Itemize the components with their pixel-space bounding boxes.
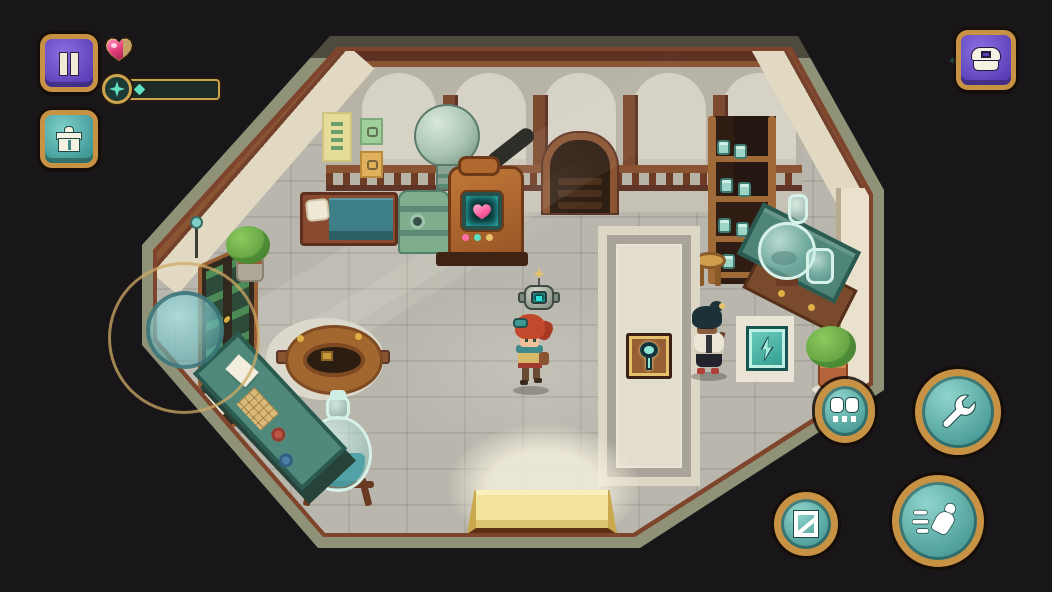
chest-button[interactable] — [956, 30, 1016, 90]
goggle-eyes-icon — [830, 398, 860, 424]
wall-beam — [326, 51, 802, 67]
energy-star-cap — [102, 74, 132, 104]
machine-heart-screen — [462, 192, 502, 230]
patch-crafting-machine — [396, 104, 528, 266]
joystick-knob[interactable] — [146, 291, 224, 369]
lamp-post — [195, 228, 198, 258]
runner-icon — [912, 501, 964, 541]
wrench-icon — [937, 391, 979, 433]
pause-icon — [59, 52, 79, 74]
pause-button[interactable] — [40, 34, 98, 92]
shopkeeper-npc — [686, 304, 732, 380]
energy-pip — [134, 84, 145, 95]
map-button[interactable] — [774, 492, 838, 556]
dash-button[interactable] — [892, 475, 984, 567]
wrench-button[interactable] — [915, 369, 1001, 455]
desk-grid-paper — [236, 387, 279, 430]
wall-poster-orange — [360, 151, 383, 178]
player-hero — [510, 314, 554, 394]
bed — [300, 192, 398, 246]
glass-jar — [806, 248, 834, 284]
four-point-star-icon — [109, 81, 125, 97]
gift-icon — [57, 127, 81, 151]
entrance-mat — [467, 490, 617, 534]
map-icon — [794, 511, 818, 537]
currency-counter: 305 — [956, 30, 1016, 90]
wall-poster-large — [322, 112, 352, 162]
red-mug — [268, 425, 288, 445]
health-hearts — [104, 36, 304, 66]
companion-button[interactable] — [815, 379, 875, 443]
heart-partial — [104, 36, 134, 64]
chest-icon — [972, 48, 1000, 72]
lamp-globe — [190, 216, 203, 229]
robot-companion — [518, 268, 562, 320]
bolt-patch-display — [746, 326, 788, 371]
key-patch-icon — [639, 342, 659, 370]
key-patch-plaque — [626, 333, 672, 379]
game-screen: 305 — [0, 0, 1052, 592]
inventory-button[interactable] — [40, 110, 98, 168]
wall-poster-green — [360, 118, 383, 145]
glass-bottle — [788, 194, 808, 224]
